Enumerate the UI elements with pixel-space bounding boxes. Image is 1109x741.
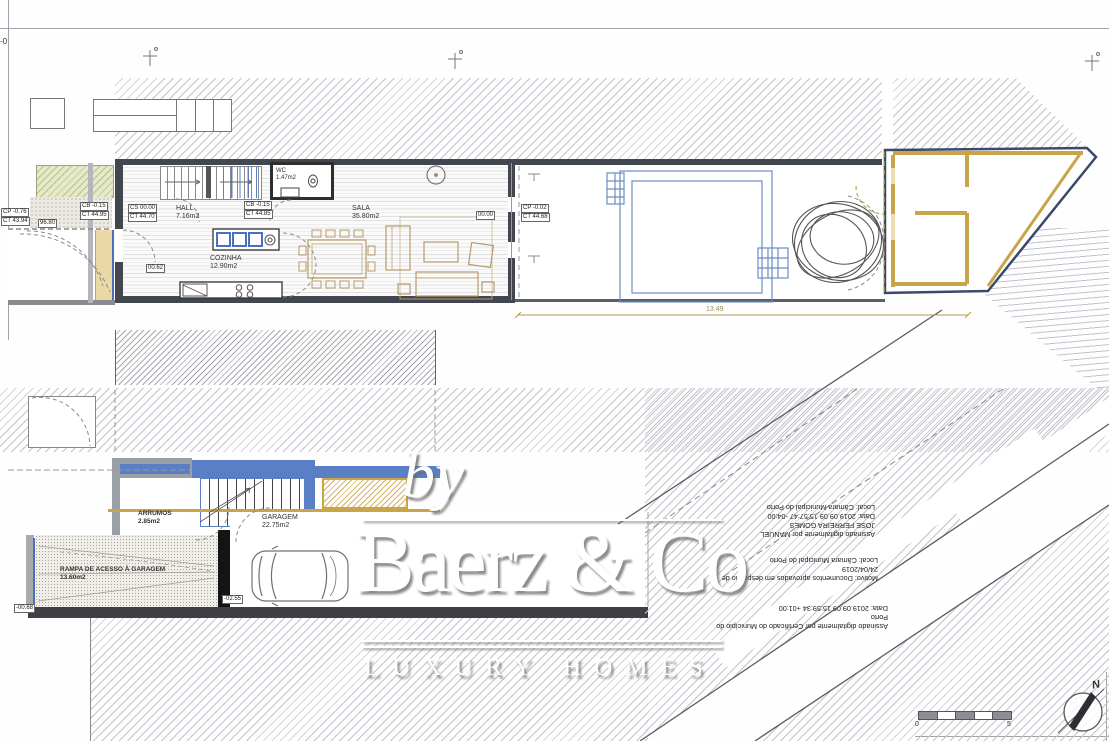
level-value: -00.68 [14,604,35,613]
room-label-sala: SALA 35.80m2 [352,205,379,221]
level-value: CS 00.00 [128,204,157,213]
sig3-line: Porto [638,613,888,622]
street-door-pocket [28,396,96,448]
right-diamond-clip [880,228,1109,388]
room-label-rampa: RAMPA DE ACESSO À GARAGEM 13.60m2 [60,566,165,581]
divider-line [176,100,177,131]
sala-level-label: 00.00 [476,203,495,221]
dwelling-left-wall-a [115,163,123,229]
room-area: 7.16m2 [176,213,199,221]
courtyard-bottom-wall [8,300,115,305]
dim-value: 96.80 [38,219,57,228]
room-name: COZINHA [210,255,242,263]
courtyard-gold-strip [95,230,113,300]
room-label-garagem: GARAGEM 22.75m2 [262,514,298,530]
terrace-bottom-wall [515,299,885,302]
level-value: CT 44.68 [521,213,550,222]
room-name: SALA [352,205,379,213]
neighbour-small-box [30,98,65,129]
lower-stairs-blue-top [192,460,315,478]
level-value: 00.62 [146,264,165,273]
room-name: HALL [176,205,199,213]
level-value: CP -0.02 [521,204,549,213]
level-value: -02.55 [222,595,243,604]
ramp-level-label: -00.68 [14,596,35,614]
terrace-level-label: CP -0.02 CT 44.68 [521,204,550,222]
window-sill-line [511,163,512,300]
scale-segment [938,712,957,719]
level-label-cs: CS 00.00 CT 44.70 [128,204,157,222]
room-name: RAMPA DE ACESSO À GARAGEM [60,566,165,574]
divider-line [94,115,176,116]
room-label-hall: HALL 7.16m2 [176,205,199,221]
dwelling-bottom-wall [115,296,515,303]
garage-level-label: -02.55 [222,587,243,605]
lower-hatch-edge [90,618,91,741]
neighbour-stair-block [93,99,232,132]
arrumos-left-wall [112,458,120,546]
floorplan-sheet: -0 [0,0,1109,741]
mid-dense-hatch [115,330,435,385]
right-diamond-hatch [880,228,1109,388]
scale-segment [993,712,1011,719]
level-label-cp-left: CP -0.76 CT 43.94 [1,208,30,226]
small-dim-label: 96.80 [38,211,57,229]
scale-segment [919,712,938,719]
scale-bar [918,711,1012,720]
watermark-rule-bottom2 [362,646,722,648]
corner-mark: -0 [0,38,7,46]
scale-start: 0 [915,721,919,729]
watermark-brand: Baerz & Co [356,512,746,613]
upper-right-hatch [885,75,1095,153]
room-area: 12.90m2 [210,263,242,271]
room-name: WC [276,168,296,175]
courtyard-blue-line [112,230,114,300]
gold-lightwell [322,478,408,509]
door-level-label: 00.62 [146,256,165,274]
scale-segment [956,712,975,719]
green-patio [36,165,114,198]
watermark-rule-bottom [362,640,722,642]
level-value: CT 44.95 [80,211,109,220]
stair-stringer [206,166,211,198]
frame-top-line [0,28,1109,29]
level-label-cb-mid: CB -0.15 CT 44.85 [244,201,273,219]
room-label-wc: WC 1.47m2 [276,168,296,182]
level-value: 00.00 [476,211,495,220]
stair-blue-flight [216,166,260,198]
room-area: 1.47m2 [276,175,296,182]
arrumos-blue-band [118,464,190,474]
level-value: CB -0.15 [244,201,272,210]
watermark-by: by [402,438,464,514]
room-area: 22.75m2 [262,522,298,530]
mid-hatch-edge [435,330,436,385]
scale-end: 5 [1007,721,1011,729]
sig3-line: Assinado digitalmente por Certificado do… [638,622,888,631]
room-area: 13.60m2 [60,574,165,582]
room-area: 2.85m2 [138,518,172,526]
level-value: CT 43.94 [1,217,30,226]
terrace-dimension: 13.49 [706,306,724,314]
mid-hatch-edge [115,330,116,385]
sig1-line: Local: Câmara Municipal do Porto [645,503,875,512]
room-name: GARAGEM [262,514,298,522]
divider-line [195,100,196,131]
scale-segment [975,712,994,719]
room-name: ARRUMOS [138,510,172,518]
party-wall [88,163,93,303]
level-value: CB -0.15 [80,202,108,211]
level-value: CP -0.76 [1,208,29,217]
terrace [515,166,882,299]
room-area: 35.80m2 [352,213,379,221]
level-value: CT 44.70 [128,213,157,222]
level-label-cb-left: CB -0.15 CT 44.95 [80,202,109,220]
dwelling-top-wall [115,159,882,165]
room-label-cozinha: COZINHA 12.90m2 [210,255,242,271]
divider-line [213,100,214,131]
room-label-arrumos: ARRUMOS 2.85m2 [138,510,172,525]
watermark-tagline: LUXURY HOMES [364,654,716,682]
level-value: CT 44.85 [244,210,273,219]
